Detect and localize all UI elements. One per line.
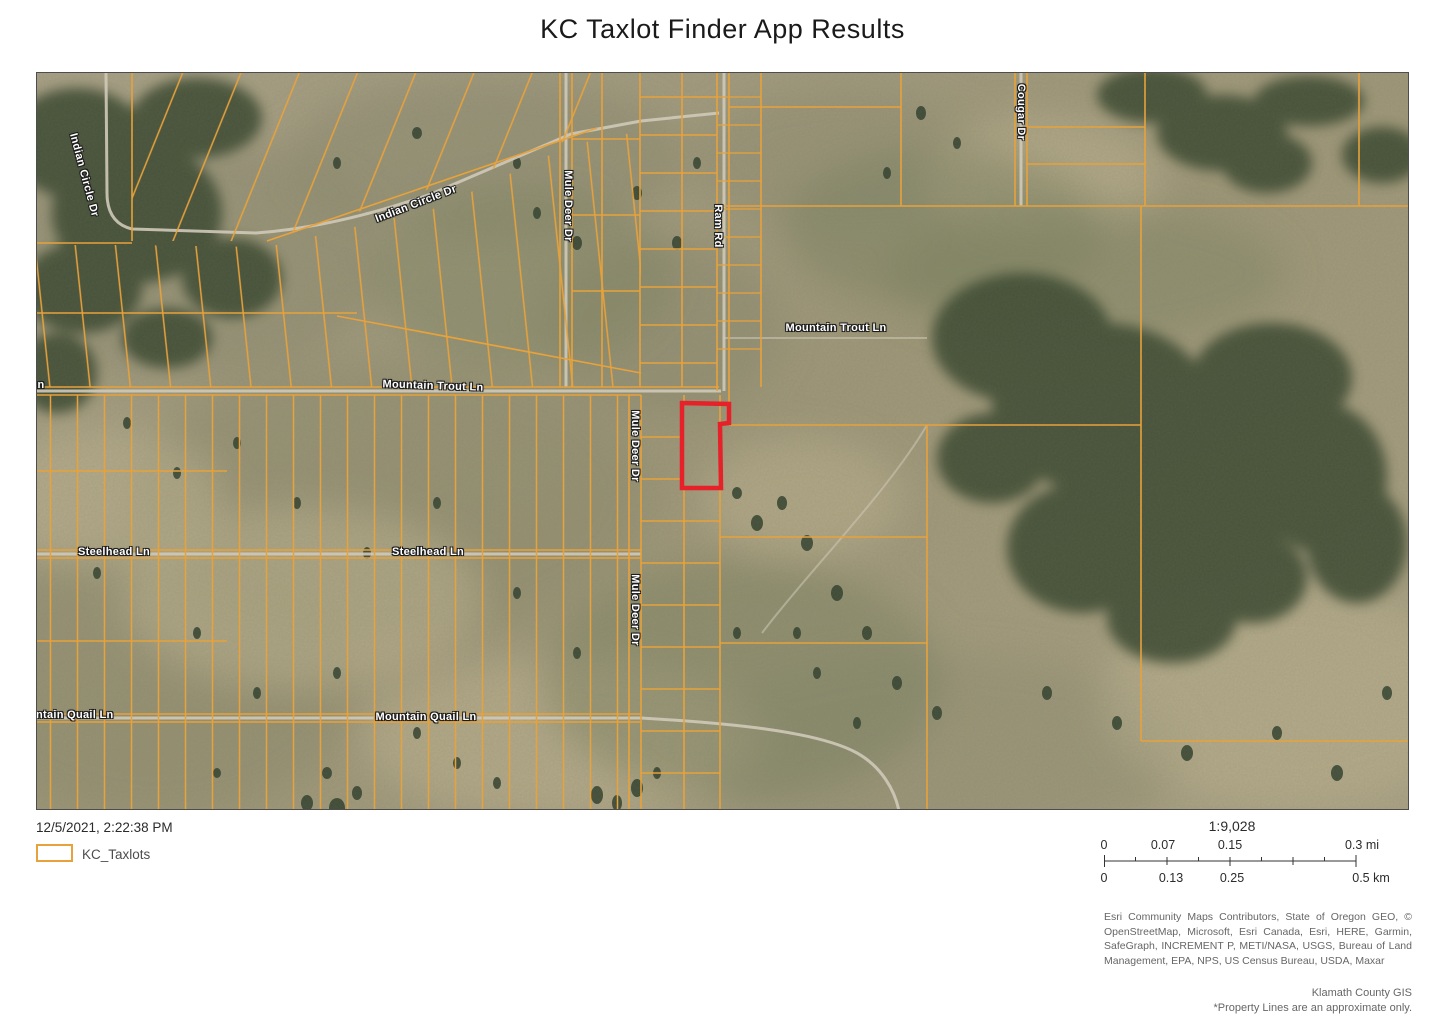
scale-km-tick-label: 0.25 <box>1220 871 1244 885</box>
scale-mi-tick-label: 0 <box>1101 838 1108 852</box>
road-label-mountain-quail-ln: Mountain Quail Ln <box>36 709 114 721</box>
scale-mi-tick-label: 0.3 mi <box>1345 838 1379 852</box>
satellite-basemap <box>37 73 1409 810</box>
page-title: KC Taxlot Finder App Results <box>0 14 1445 45</box>
scale-bar-graphic <box>1104 854 1360 868</box>
scale-km-tick-label: 0 <box>1101 871 1108 885</box>
map-timestamp: 12/5/2021, 2:22:38 PM <box>36 820 173 835</box>
road-label-mule-deer-dr: Mule Deer Dr <box>562 170 574 241</box>
road-label-cougar-dr: Cougar Dr <box>1015 84 1027 140</box>
road-label-mountain-trout-ln: Mountain Trout Ln <box>785 322 886 334</box>
road-label-steelhead-ln: Steelhead Ln <box>78 546 150 558</box>
road-label-mountain-quail-ln: Mountain Quail Ln <box>375 711 476 723</box>
scale-ratio: 1:9,028 <box>1104 818 1360 834</box>
attribution-disclaimer: *Property Lines are an approximate only. <box>1104 1002 1412 1014</box>
scale-mi-tick-label: 0.15 <box>1218 838 1242 852</box>
attribution-sources: Esri Community Maps Contributors, State … <box>1104 910 1412 969</box>
scale-mi-tick-label: 0.07 <box>1151 838 1175 852</box>
taxlot-finder-page: KC Taxlot Finder App Results <box>0 0 1445 1023</box>
road-label-mountain-trout-ln-clipped: Mountain Trout Ln <box>36 379 45 391</box>
legend-taxlot-swatch <box>36 844 73 862</box>
scale-bar: 0 0.07 0.15 0.3 mi 0 0.13 0.25 0.5 km <box>1104 838 1380 886</box>
scale-km-tick-label: 0.5 km <box>1352 871 1390 885</box>
road-label-steelhead-ln: Steelhead Ln <box>392 546 464 558</box>
map-canvas[interactable]: Indian Circle Dr Indian Circle Dr Mule D… <box>36 72 1409 810</box>
legend-taxlot-label: KC_Taxlots <box>82 847 150 862</box>
road-label-mule-deer-dr: Mule Deer Dr <box>629 410 641 481</box>
scale-km-tick-label: 0.13 <box>1159 871 1183 885</box>
road-label-mule-deer-dr: Mule Deer Dr <box>629 574 641 645</box>
attribution-agency: Klamath County GIS <box>1104 987 1412 999</box>
road-label-ram-rd: Ram Rd <box>712 204 724 247</box>
